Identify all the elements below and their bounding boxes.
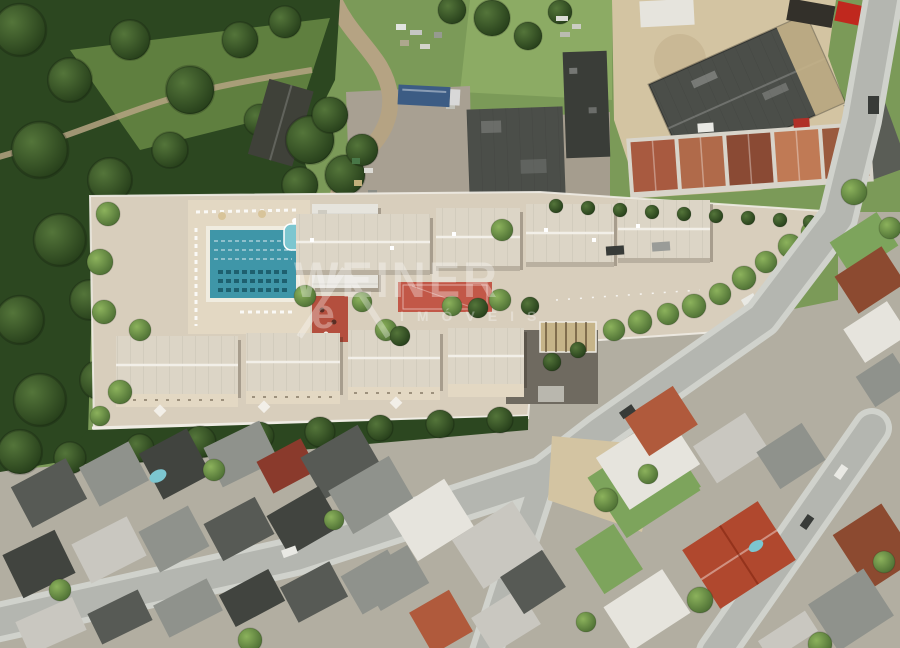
car bbox=[652, 241, 671, 251]
aerial-scene bbox=[0, 0, 900, 648]
car bbox=[793, 118, 810, 128]
pool-area bbox=[188, 200, 310, 334]
swimming-pool bbox=[210, 230, 296, 298]
white-building bbox=[639, 0, 694, 27]
aerial-render: e WEINER IMÓVEIS bbox=[0, 0, 900, 648]
car bbox=[606, 245, 625, 255]
car bbox=[697, 122, 714, 132]
condo-buildings-bottom bbox=[116, 328, 527, 407]
car bbox=[868, 96, 879, 114]
